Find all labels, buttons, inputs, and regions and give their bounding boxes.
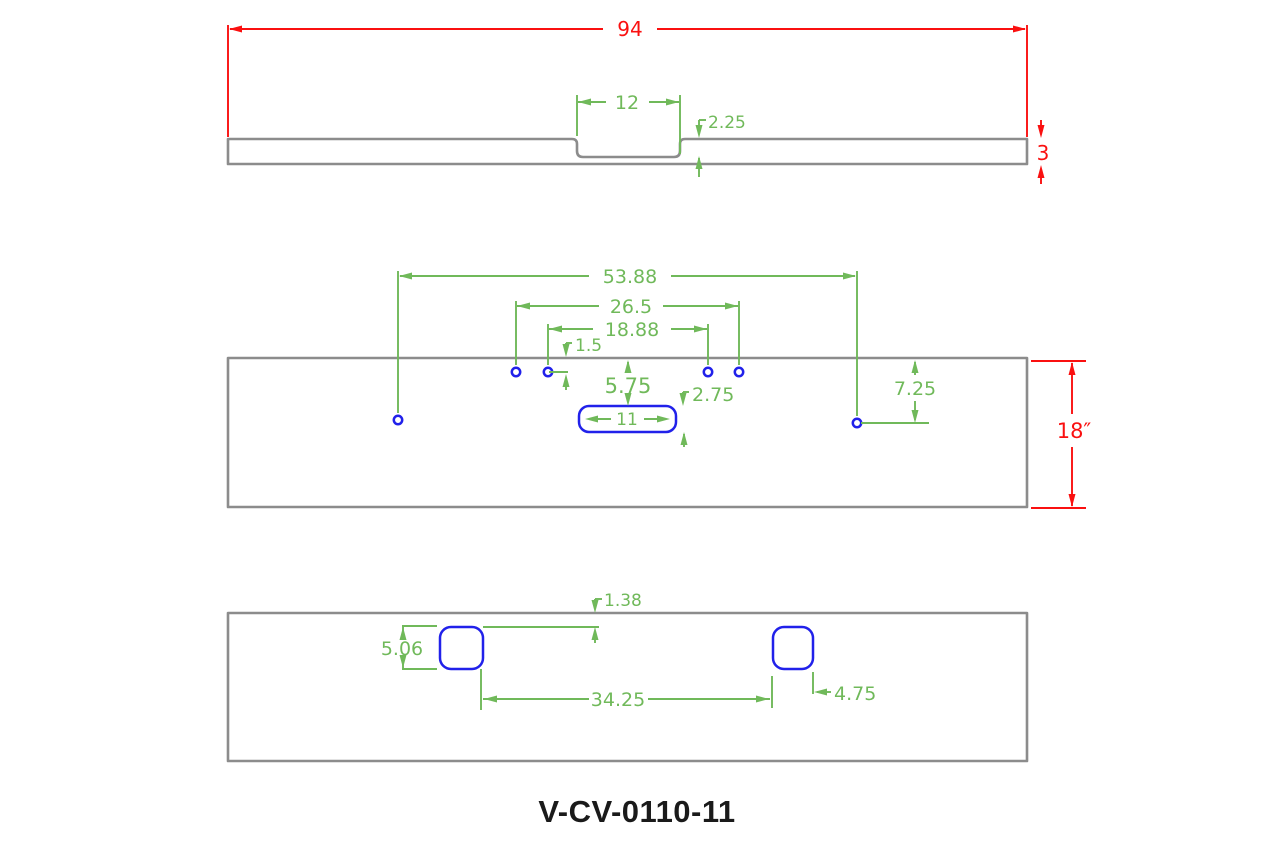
arrow-left-icon (399, 273, 412, 280)
dim-large-hole-span-label: 53.88 (603, 266, 657, 288)
dim-cutout-edge-offset: 4.75 (813, 672, 876, 705)
dim-cutout-from-top: 1.38 (483, 591, 642, 643)
dim-slot-height-label: 2.75 (692, 384, 734, 406)
arrow-down-icon (680, 393, 687, 406)
arrow-right-icon (756, 696, 769, 703)
arrow-left-icon (484, 696, 497, 703)
arrow-left-icon (549, 326, 562, 333)
arrow-down-icon (563, 344, 570, 357)
dim-small-holes-from-top: 1.5 (549, 336, 602, 390)
cutout-left (440, 627, 483, 669)
arrow-right-icon (1013, 26, 1026, 33)
dim-slot-length-label: 11 (616, 410, 638, 430)
arrow-right-icon (843, 273, 856, 280)
arrow-down-icon (1069, 494, 1076, 507)
technical-drawing-canvas: 94 12 2.25 3 (0, 0, 1280, 853)
dim-plate-height: 18″ (1031, 361, 1091, 508)
bottom-face-view: 1.38 5.06 34.25 4.75 (228, 591, 1027, 761)
dim-outer-hole-pair-span-label: 26.5 (610, 296, 652, 318)
hole-small-3 (704, 368, 712, 376)
dim-overall-width-label: 94 (617, 17, 642, 41)
dim-small-holes-from-top-label: 1.5 (575, 336, 602, 356)
dim-thickness-label: 3 (1037, 141, 1050, 165)
hole-small-4 (735, 368, 743, 376)
arrow-down-icon (1038, 125, 1045, 138)
front-face-view: 53.88 26.5 18.88 (228, 266, 1091, 508)
arrow-up-icon (681, 432, 688, 445)
arrow-left-icon (814, 689, 827, 696)
bottom-face-outline (228, 613, 1027, 761)
dim-inner-hole-pair-span-label: 18.88 (605, 319, 659, 341)
dim-large-holes-from-top-label: 7.25 (894, 378, 936, 400)
arrow-right-icon (657, 416, 670, 423)
arrow-right-icon (694, 326, 707, 333)
dim-cutout-height: 5.06 (381, 626, 437, 669)
dim-notch-depth: 2.25 (696, 113, 746, 177)
hole-small-1 (512, 368, 520, 376)
dim-thickness: 3 (1037, 120, 1050, 184)
arrow-left-icon (229, 26, 242, 33)
arrow-right-icon (725, 303, 738, 310)
cutout-right (773, 627, 813, 669)
arrow-up-icon (1038, 165, 1045, 178)
dim-overall-width: 94 (228, 17, 1027, 137)
arrow-up-icon (1069, 362, 1076, 375)
top-profile-view: 94 12 2.25 3 (228, 17, 1049, 184)
dim-notch-width: 12 (577, 92, 680, 154)
arrow-left-icon (585, 416, 598, 423)
dim-notch-width-label: 12 (615, 92, 639, 114)
dim-slot-from-top-label: 5.75 (605, 374, 652, 398)
arrow-left-icon (578, 99, 591, 106)
arrow-up-icon (563, 374, 570, 387)
hole-large-left (394, 416, 402, 424)
arrow-up-icon (592, 627, 599, 640)
dim-notch-depth-label: 2.25 (708, 113, 746, 133)
arrow-left-icon (517, 303, 530, 310)
arrow-up-icon (625, 360, 632, 373)
dim-slot-from-top: 5.75 (605, 360, 652, 406)
arrow-up-icon (912, 360, 919, 373)
dim-slot-height: 2.75 (680, 384, 735, 447)
dim-cutout-spacing: 34.25 (481, 669, 772, 711)
dim-cutout-from-top-label: 1.38 (604, 591, 642, 611)
hole-large-right (853, 419, 861, 427)
part-number-title: V-CV-0110-11 (538, 794, 735, 829)
dim-cutout-height-label: 5.06 (381, 638, 423, 660)
arrow-up-icon (696, 156, 703, 169)
drawing-page: 94 12 2.25 3 (0, 0, 1280, 853)
arrow-down-icon (912, 410, 919, 423)
arrow-down-icon (696, 125, 703, 138)
dim-slot-length: 11 (585, 410, 670, 430)
dim-cutout-spacing-label: 34.25 (591, 689, 645, 711)
arrow-down-icon (592, 600, 599, 613)
top-profile-outline (228, 139, 1027, 164)
dim-large-holes-from-top: 7.25 (861, 360, 936, 423)
dim-cutout-edge-offset-label: 4.75 (834, 683, 876, 705)
dim-plate-height-label: 18″ (1057, 419, 1092, 443)
arrow-right-icon (666, 99, 679, 106)
